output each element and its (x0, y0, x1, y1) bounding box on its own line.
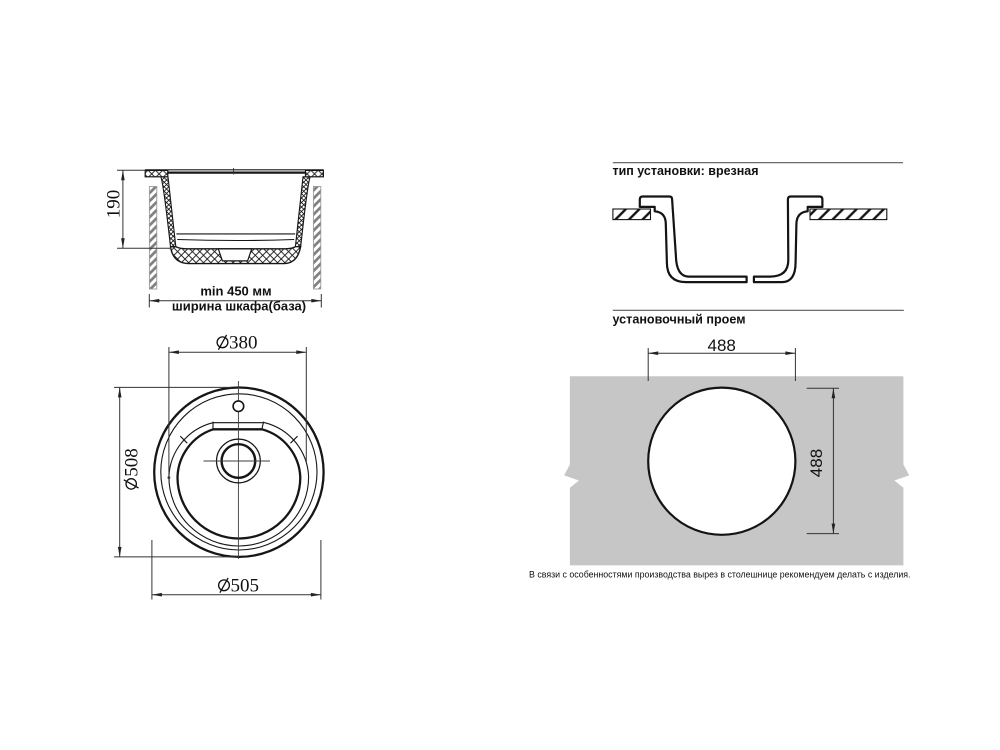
svg-text:В связи с особенностями произв: В связи с особенностями производства выр… (529, 570, 911, 580)
svg-text:тип установки: врезная: тип установки: врезная (613, 163, 759, 178)
svg-text:min 450 мм: min 450 мм (200, 284, 271, 299)
svg-text:505: 505 (231, 576, 260, 597)
svg-text:488: 488 (708, 336, 736, 355)
svg-text:190: 190 (104, 190, 125, 219)
svg-text:ширина шкафа(база): ширина шкафа(база) (172, 299, 306, 314)
svg-text:380: 380 (229, 333, 258, 354)
svg-text:488: 488 (807, 449, 826, 477)
svg-text:508: 508 (121, 448, 142, 477)
svg-text:установочный проем: установочный проем (613, 311, 746, 326)
